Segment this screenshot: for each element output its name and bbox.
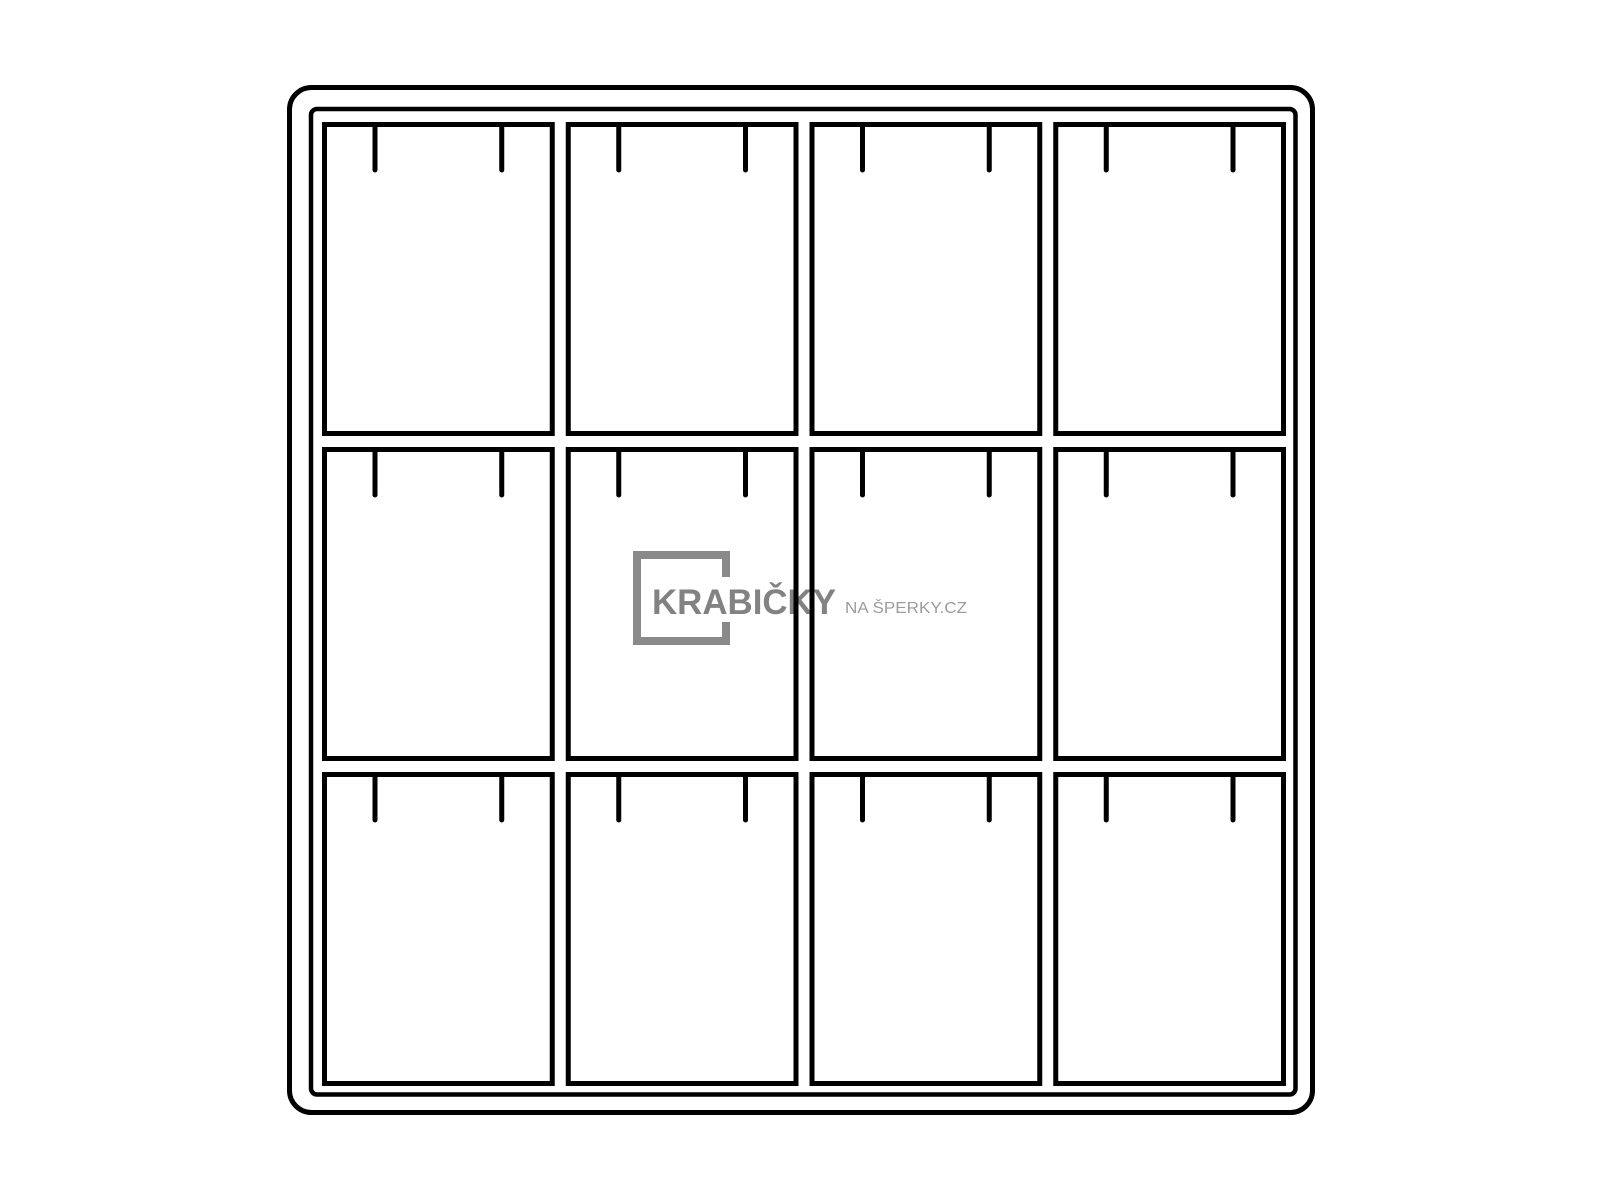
tray-compartment: [568, 775, 796, 1084]
product-image: KRABIČKY NA ŠPERKY.CZ: [0, 0, 1600, 1200]
tray-compartment: [812, 775, 1040, 1084]
compartment-outline: [812, 125, 1040, 434]
tray-compartment: [325, 775, 553, 1084]
tray-compartment: [325, 125, 553, 434]
tray-compartment: [812, 125, 1040, 434]
compartment-outline: [568, 775, 796, 1084]
tray-compartment: [1056, 450, 1284, 759]
tray-compartment: [1056, 775, 1284, 1084]
compartment-outline: [812, 775, 1040, 1084]
watermark-logo: KRABIČKY NA ŠPERKY.CZ: [637, 555, 967, 641]
compartment-outline: [325, 125, 553, 434]
compartment-outline: [1056, 125, 1284, 434]
compartment-outline: [325, 450, 553, 759]
jewelry-tray-illustration: KRABIČKY NA ŠPERKY.CZ: [0, 0, 1600, 1200]
tray-compartment: [325, 450, 553, 759]
compartment-outline: [1056, 450, 1284, 759]
compartment-outline: [1056, 775, 1284, 1084]
compartment-outline: [568, 125, 796, 434]
tray-compartment: [568, 125, 796, 434]
compartment-outline: [325, 775, 553, 1084]
brand-suffix-text: NA ŠPERKY.CZ: [845, 598, 967, 617]
tray-compartment: [1056, 125, 1284, 434]
brand-text: KRABIČKY: [652, 582, 836, 622]
